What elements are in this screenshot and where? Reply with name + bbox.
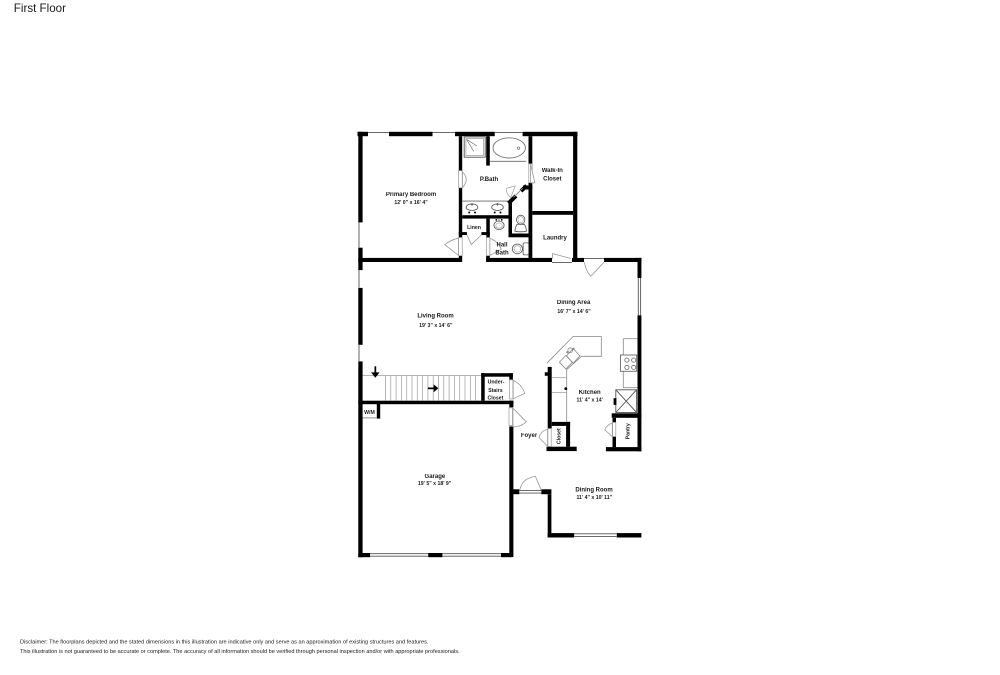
svg-text:First Floor: First Floor: [14, 2, 66, 15]
svg-text:Foyer: Foyer: [521, 433, 538, 439]
svg-text:Hall: Hall: [496, 242, 507, 248]
svg-text:Linen: Linen: [467, 225, 481, 231]
svg-text:16' 7" x 14' 6": 16' 7" x 14' 6": [557, 309, 591, 315]
svg-text:11' 4" x 14': 11' 4" x 14': [577, 398, 603, 404]
svg-text:Closet: Closet: [487, 395, 503, 401]
svg-text:Disclaimer: The floorplans dep: Disclaimer: The floorplans depicted and …: [20, 639, 429, 645]
svg-text:Kitchen: Kitchen: [579, 390, 601, 396]
svg-text:19' 5" x 18' 9": 19' 5" x 18' 9": [418, 481, 452, 487]
svg-text:Living Room: Living Room: [417, 313, 453, 319]
svg-text:Closet: Closet: [557, 428, 563, 444]
svg-text:Garage: Garage: [425, 474, 446, 480]
svg-text:11' 4" x 10' 11": 11' 4" x 10' 11": [576, 495, 612, 501]
svg-text:Primary Bedroom: Primary Bedroom: [386, 192, 436, 198]
svg-text:This illustration is not guara: This illustration is not guaranteed to b…: [20, 649, 460, 655]
svg-text:12' 0" x 16' 4": 12' 0" x 16' 4": [394, 200, 428, 206]
svg-text:Stairs: Stairs: [488, 388, 503, 394]
svg-text:19' 3" x 14' 6": 19' 3" x 14' 6": [419, 323, 453, 329]
svg-text:Pantry: Pantry: [626, 423, 632, 439]
svg-text:Closet: Closet: [543, 176, 561, 182]
svg-text:Under-: Under-: [488, 380, 505, 386]
svg-text:P.Bath: P.Bath: [480, 177, 499, 183]
svg-text:Laundry: Laundry: [543, 235, 567, 241]
svg-text:Dining Area: Dining Area: [557, 300, 591, 306]
svg-text:Bath: Bath: [495, 250, 509, 256]
svg-text:W/M: W/M: [364, 410, 375, 416]
svg-text:Walk-In: Walk-In: [542, 168, 563, 174]
svg-text:Dining Room: Dining Room: [575, 487, 612, 493]
